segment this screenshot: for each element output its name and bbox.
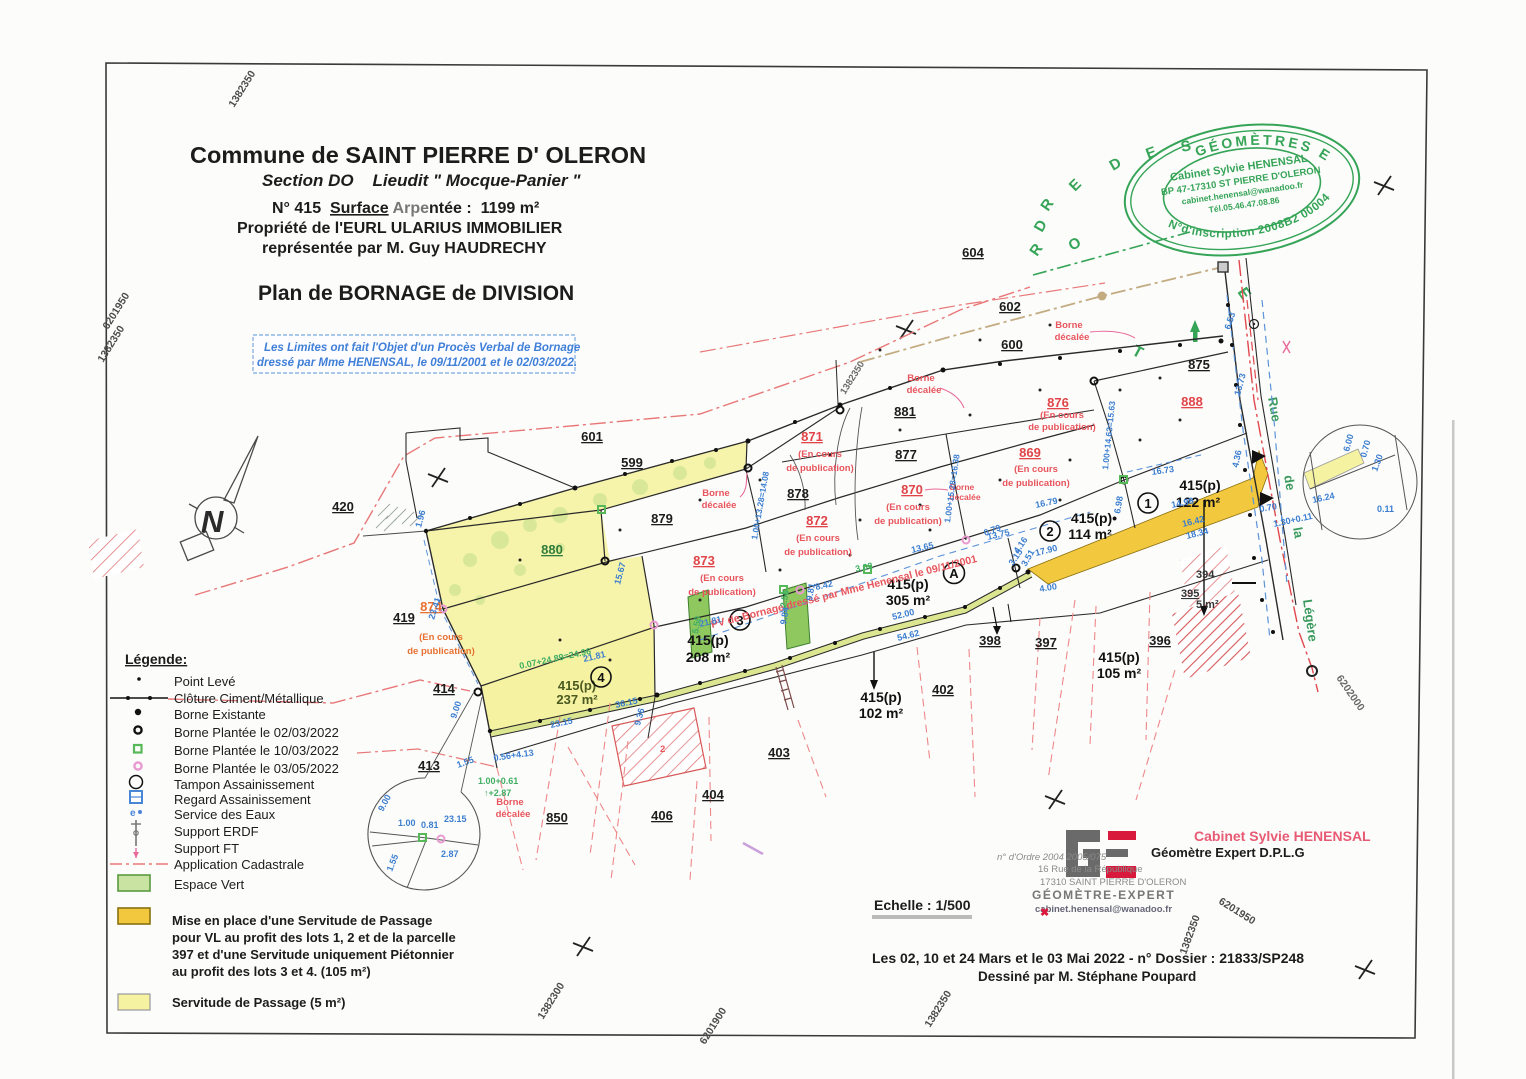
svg-text:871: 871 (801, 429, 823, 444)
svg-text:601: 601 (581, 429, 603, 444)
svg-text:599: 599 (621, 455, 643, 470)
svg-text:879: 879 (651, 511, 673, 526)
svg-text:de publication): de publication) (784, 547, 852, 558)
svg-text:420: 420 (332, 499, 354, 514)
svg-text:Borne: Borne (907, 373, 934, 384)
svg-text:2.87: 2.87 (441, 849, 459, 859)
svg-text:394: 394 (1196, 569, 1215, 581)
svg-text:N: N (201, 504, 224, 539)
svg-text:décalée: décalée (1055, 332, 1090, 343)
svg-text:(En cours: (En cours (796, 533, 840, 544)
svg-text:415(p): 415(p) (558, 678, 596, 693)
svg-text:415(p): 415(p) (687, 632, 728, 648)
svg-text:2: 2 (660, 744, 665, 755)
svg-text:305 m²: 305 m² (886, 592, 931, 608)
svg-text:Géomètre Expert D.P.L.G: Géomètre Expert D.P.L.G (1151, 845, 1305, 860)
svg-text:de publication): de publication) (874, 516, 942, 527)
svg-text:888: 888 (1181, 394, 1203, 409)
svg-text:398: 398 (979, 633, 1001, 648)
svg-text:600: 600 (1001, 337, 1023, 352)
svg-text:1.00+0.61: 1.00+0.61 (478, 776, 518, 786)
svg-text:237 m²: 237 m² (556, 692, 598, 707)
svg-text:de publication): de publication) (407, 646, 475, 657)
svg-text:Application Cadastrale: Application Cadastrale (174, 857, 304, 872)
svg-text:23.15: 23.15 (444, 814, 467, 824)
svg-text:cabinet.henensal@wanadoo.fr: cabinet.henensal@wanadoo.fr (1035, 904, 1172, 915)
svg-text:pour VL au profit des lots 1,: pour VL au profit des lots 1, 2 et de la… (172, 930, 456, 945)
svg-text:Servitude de Passage (5 m²): Servitude de Passage (5 m²) (172, 995, 345, 1010)
svg-text:Service des Eaux: Service des Eaux (174, 807, 276, 822)
svg-text:décalée: décalée (496, 809, 531, 820)
svg-text:881: 881 (894, 404, 916, 419)
svg-text:Commune de SAINT PIERRE D' OLE: Commune de SAINT PIERRE D' OLERON (190, 142, 646, 168)
svg-text:870: 870 (901, 482, 923, 497)
svg-text:873: 873 (693, 553, 715, 568)
svg-text:0.81: 0.81 (421, 820, 439, 830)
svg-text:décalée: décalée (702, 500, 737, 511)
svg-text:Borne Existante: Borne Existante (174, 707, 266, 722)
svg-text:875: 875 (1188, 357, 1210, 372)
svg-text:850: 850 (546, 810, 568, 825)
svg-text:de: de (1281, 474, 1298, 492)
svg-text:402: 402 (932, 682, 954, 697)
svg-text:869: 869 (1019, 445, 1041, 460)
svg-text:Borne Plantée le 02/03/2022: Borne Plantée le 02/03/2022 (174, 725, 339, 740)
svg-text:2: 2 (1046, 524, 1053, 539)
svg-text:0.11: 0.11 (1377, 504, 1394, 514)
svg-text:Borne: Borne (1055, 320, 1082, 331)
svg-text:Point Levé: Point Levé (174, 674, 235, 689)
svg-text:397: 397 (1035, 635, 1057, 650)
svg-text:GÉOMÈTRE-EXPERT: GÉOMÈTRE-EXPERT (1032, 887, 1175, 902)
svg-text:415(p): 415(p) (1098, 649, 1139, 665)
svg-text:Support FT: Support FT (174, 841, 239, 856)
svg-text:105 m²: 105 m² (1097, 665, 1142, 681)
svg-text:Mise en place d'une Servitude: Mise en place d'une Servitude de Passage (172, 913, 432, 928)
svg-text:414: 414 (433, 681, 455, 696)
svg-text:Espace Vert: Espace Vert (174, 877, 244, 892)
svg-text:décalée: décalée (907, 385, 942, 396)
svg-text:415(p): 415(p) (1179, 477, 1220, 493)
svg-text:Echelle : 1/500: Echelle : 1/500 (874, 897, 971, 913)
svg-text:17310 SAINT PIERRE D'OLERON: 17310 SAINT PIERRE D'OLERON (1040, 877, 1186, 888)
svg-text:1: 1 (1144, 496, 1151, 511)
svg-text:396: 396 (1149, 633, 1171, 648)
svg-text:Cabinet Sylvie HENENSAL: Cabinet Sylvie HENENSAL (1194, 828, 1371, 844)
svg-text:représentée par M. Guy HAUDREC: représentée par M. Guy HAUDRECHY (262, 240, 547, 257)
svg-text:878: 878 (787, 486, 809, 501)
svg-text:Clôture Ciment/Métallique: Clôture Ciment/Métallique (174, 691, 324, 706)
svg-text:604: 604 (962, 245, 984, 260)
svg-text:(En cours: (En cours (886, 502, 930, 513)
svg-text:877: 877 (895, 447, 917, 462)
svg-text:415(p)•: 415(p)• (1071, 510, 1117, 526)
svg-text:n° d'Ordre 2004 2005/075: n° d'Ordre 2004 2005/075 (997, 852, 1107, 863)
svg-text:403: 403 (768, 745, 790, 760)
svg-text:415(p): 415(p) (860, 689, 901, 705)
svg-text:1.00: 1.00 (398, 818, 416, 828)
svg-text:114 m²: 114 m² (1068, 526, 1112, 542)
svg-text:419: 419 (393, 610, 415, 625)
svg-text:16 Rue de la République: 16 Rue de la République (1038, 864, 1143, 875)
svg-text:Dessiné par M. Stéphane Poupar: Dessiné par M. Stéphane Poupard (978, 969, 1196, 984)
svg-text:602: 602 (999, 299, 1021, 314)
svg-text:Borne: Borne (702, 488, 729, 499)
svg-text:876: 876 (1047, 395, 1069, 410)
svg-text:Borne Plantée le 03/05/2022: Borne Plantée le 03/05/2022 (174, 761, 339, 776)
svg-text:N° 415 Surface Arpentée : 11: N° 415 Surface Arpentée : 1199 m² (272, 200, 539, 217)
svg-text:de publication): de publication) (786, 463, 854, 474)
svg-text:Borne Plantée le 10/03/2022: Borne Plantée le 10/03/2022 (174, 743, 339, 758)
svg-text:Propriété de l'EURL ULARIUS IM: Propriété de l'EURL ULARIUS IMMOBILIER (237, 220, 563, 237)
svg-text:Plan de BORNAGE de DIVISION: Plan de BORNAGE de DIVISION (258, 282, 574, 305)
svg-text:✖: ✖ (1040, 907, 1049, 919)
svg-text:Support ERDF: Support ERDF (174, 824, 259, 839)
svg-text:Les 02, 10 et 24 Mars et le 03: Les 02, 10 et 24 Mars et le 03 Mai 2022 … (872, 950, 1304, 966)
svg-text:404: 404 (702, 787, 724, 802)
svg-text:5 m²: 5 m² (1196, 599, 1219, 611)
svg-text:208 m²: 208 m² (686, 649, 731, 665)
svg-text:Les Limites ont fait l'Objet d: Les Limites ont fait l'Objet d'un Procès… (264, 342, 581, 354)
svg-text:880: 880 (541, 542, 563, 557)
svg-text:de publication): de publication) (688, 587, 756, 598)
svg-text:(En cours: (En cours (798, 449, 842, 460)
svg-text:(En cours: (En cours (1014, 464, 1058, 475)
svg-text:(En cours: (En cours (419, 632, 463, 643)
svg-text:(En cours: (En cours (1040, 410, 1084, 421)
svg-text:↑+2.87: ↑+2.87 (484, 788, 511, 798)
svg-text:e: e (130, 808, 136, 819)
svg-text:Tampon Assainissement: Tampon Assainissement (174, 777, 315, 792)
svg-text:dressé par Mme HENENSAL, le 09: dressé par Mme HENENSAL, le 09/11/2001 e… (257, 357, 577, 369)
svg-text:Section DO Lieudit " Mocque: Section DO Lieudit " Mocque-Panier " (262, 171, 581, 190)
svg-text:872: 872 (806, 513, 828, 528)
svg-text:au profit des lots 3 et 4. (10: au profit des lots 3 et 4. (105 m²) (172, 964, 371, 979)
svg-text:406: 406 (651, 808, 673, 823)
svg-text:de publication): de publication) (1002, 478, 1070, 489)
svg-text:Borne: Borne (496, 797, 523, 808)
svg-text:(En cours: (En cours (700, 573, 744, 584)
svg-text:4: 4 (597, 670, 605, 685)
svg-text:Regard Assainissement: Regard Assainissement (174, 792, 311, 807)
svg-text:102 m²: 102 m² (859, 705, 904, 721)
svg-text:397 et d'une Servitude uniquem: 397 et d'une Servitude uniquement Piéton… (172, 947, 454, 962)
svg-text:de publication): de publication) (1028, 422, 1096, 433)
svg-text:Légende:: Légende: (125, 651, 187, 667)
